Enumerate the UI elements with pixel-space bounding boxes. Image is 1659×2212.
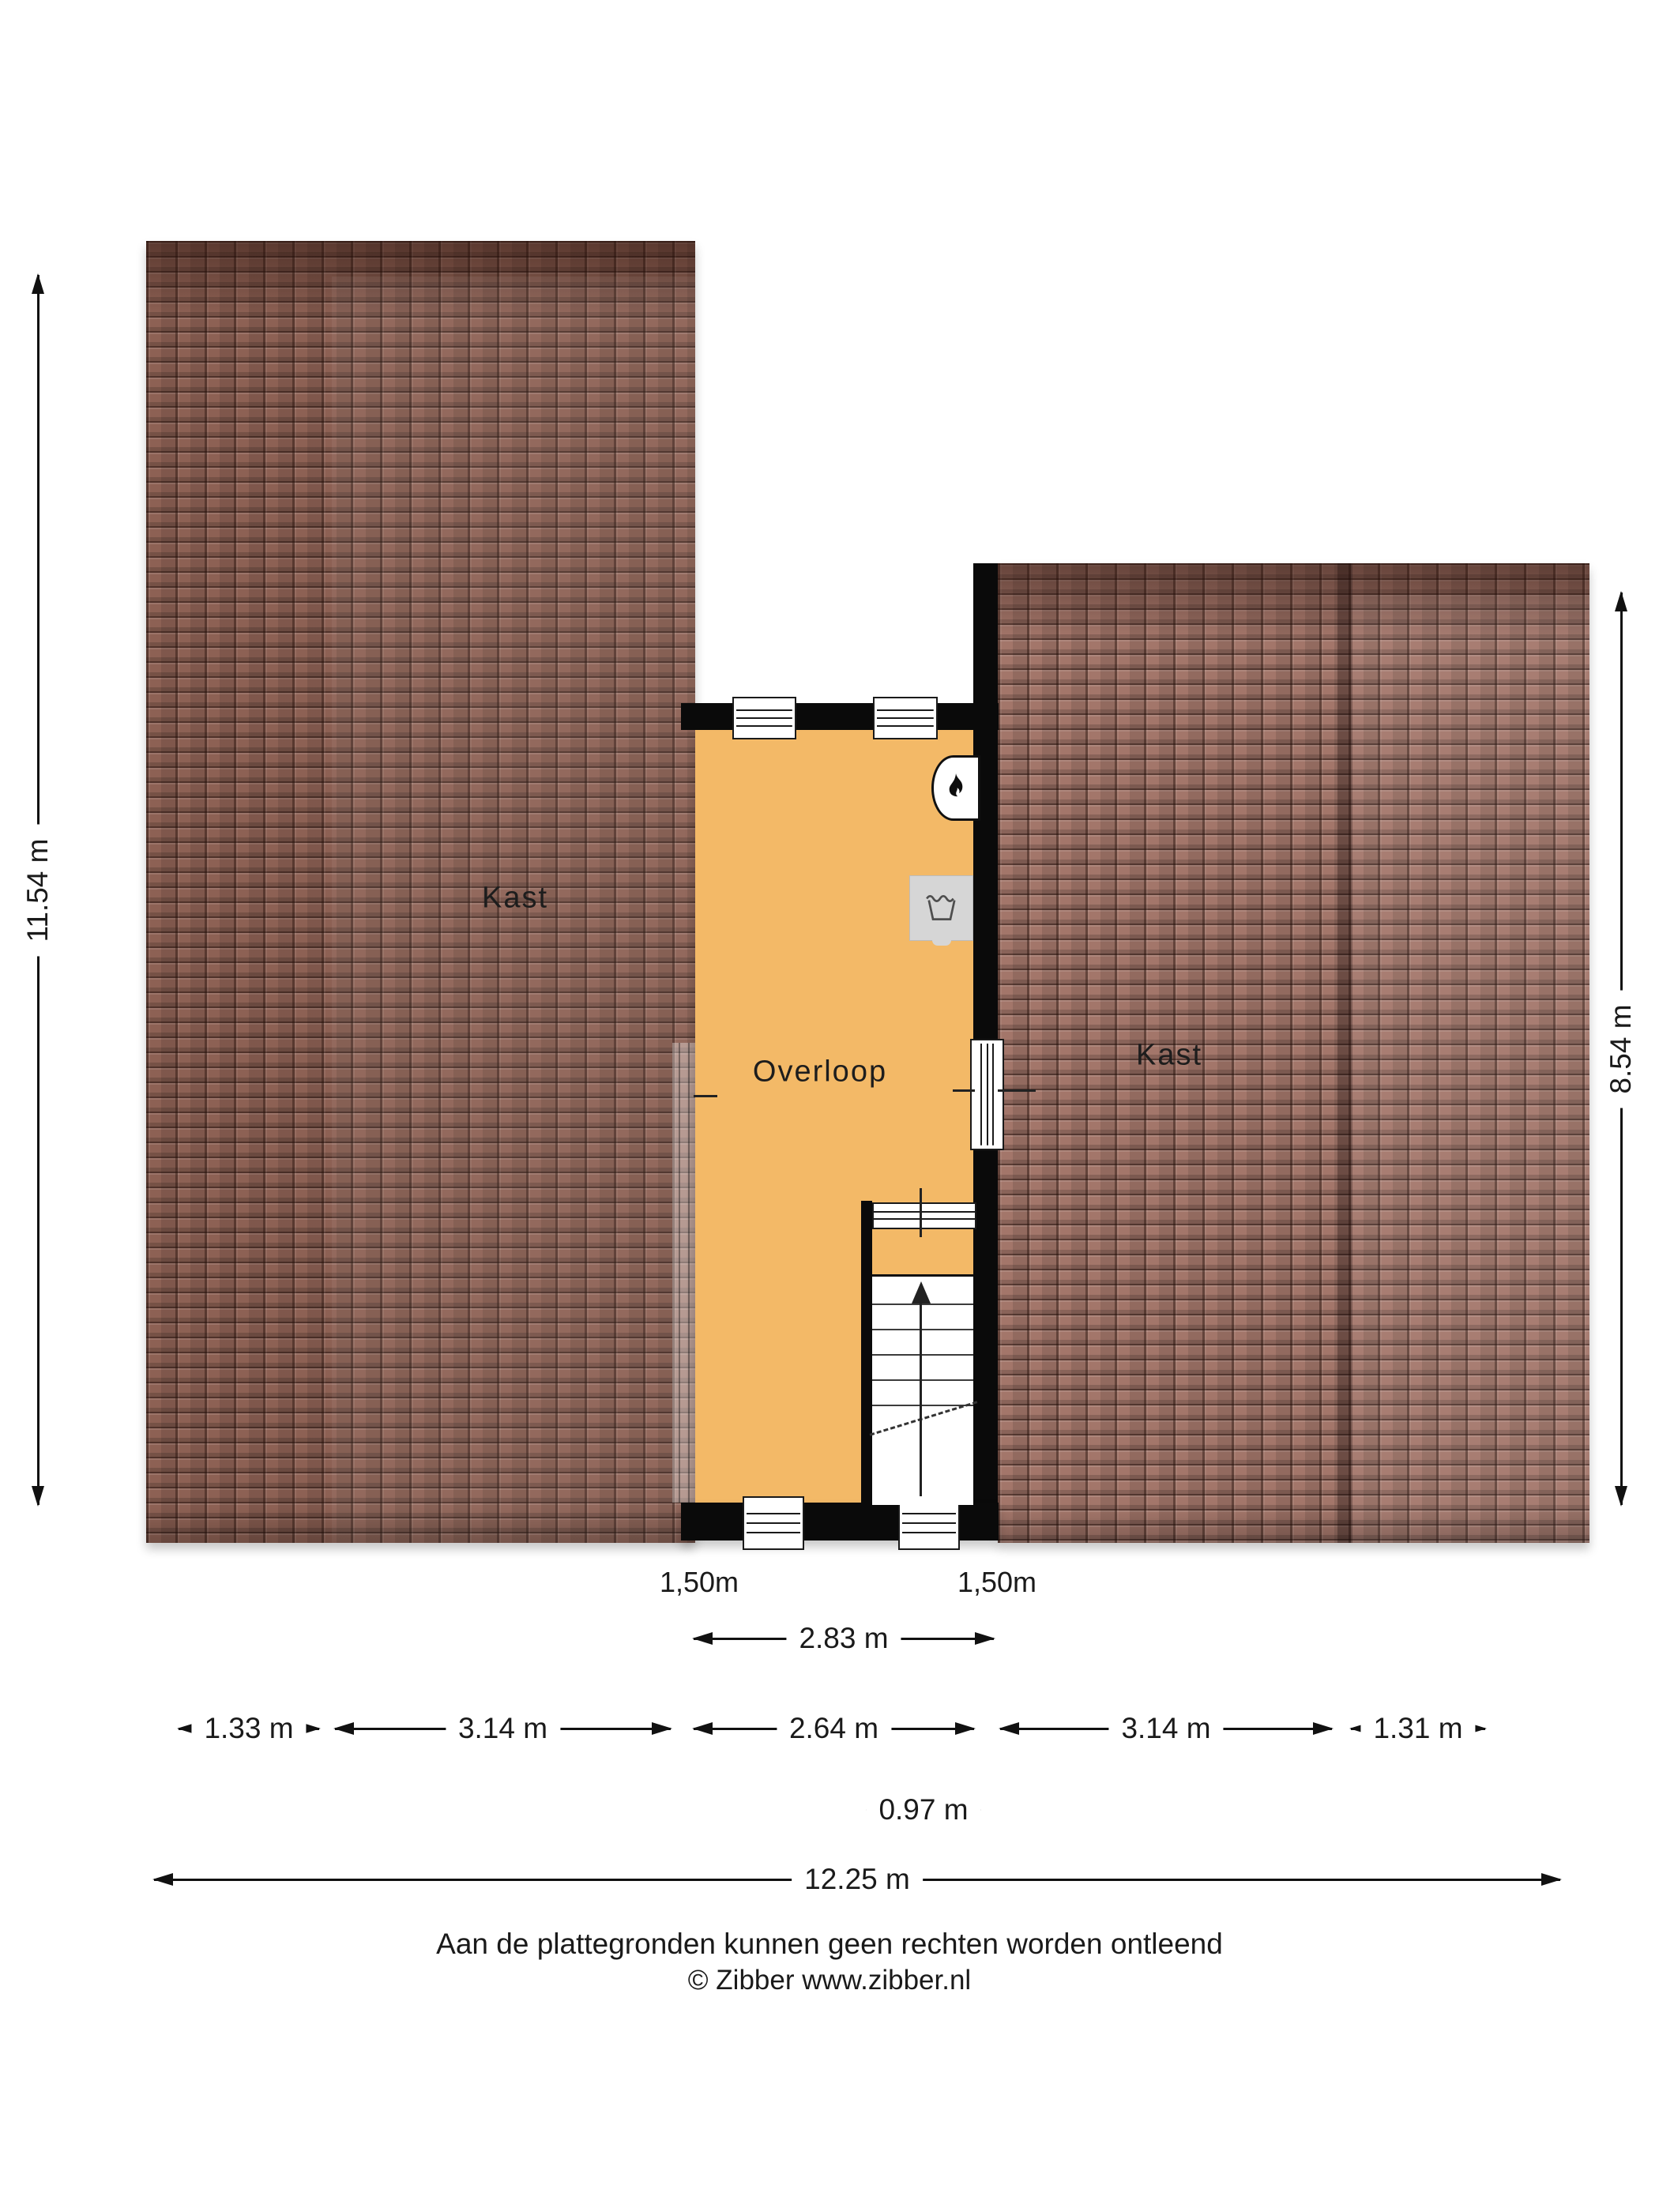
boiler-unit (931, 755, 980, 821)
arrow-right-icon (975, 1632, 995, 1645)
roof-eave-shading (998, 1507, 1589, 1543)
washer-tab (932, 940, 951, 946)
flame-icon (941, 771, 971, 806)
arrow-left-icon (152, 1873, 173, 1886)
dimension-label: 1.31 m (1360, 1712, 1475, 1745)
roof-light-shading (1352, 595, 1589, 1543)
roof-dark-band (1337, 563, 1352, 1543)
dimension-segment-4: 3.14 m (1000, 1728, 1332, 1730)
window-top-left (732, 697, 796, 739)
dimension-label: 3.14 m (1108, 1712, 1223, 1745)
dimension-total-width: 12.25 m (154, 1879, 1560, 1881)
window-right-wall (970, 1039, 1004, 1150)
arrow-down-icon (1615, 1486, 1627, 1507)
room-label-kast-right: Kast (1136, 1039, 1202, 1073)
dimension-label: 1.33 m (191, 1712, 306, 1745)
dimension-label: 2.64 m (777, 1712, 891, 1745)
stair-treads (872, 1303, 973, 1428)
arrow-right-icon (1313, 1722, 1334, 1735)
window-top-right (873, 697, 938, 739)
arrow-down-icon (32, 1486, 44, 1507)
dimension-right-height: 8.54 m (1620, 592, 1623, 1505)
dimension-segment-5: 1.31 m (1351, 1728, 1485, 1730)
arrow-left-icon (692, 1722, 713, 1735)
floorplan-canvas: Kast Kast Overloop (0, 0, 1659, 2212)
clearance-tick-right-outer (998, 1089, 1036, 1092)
arrow-up-icon (32, 273, 44, 294)
arrow-right-icon (1541, 1873, 1562, 1886)
staircase (872, 1274, 973, 1505)
wall-stairwell-left (861, 1201, 872, 1503)
dimension-left-height: 11.54 m (37, 275, 39, 1505)
room-label-overloop: Overloop (753, 1055, 887, 1089)
dimension-segment-3: 2.64 m (694, 1728, 974, 1730)
stair-opening-tick (920, 1188, 922, 1237)
washing-machine (909, 875, 973, 941)
wall-top (681, 703, 999, 730)
dimension-label: 0.97 m (866, 1793, 980, 1826)
footer-copyright: © Zibber www.zibber.nl (0, 1965, 1659, 1996)
room-label-kast-left: Kast (482, 882, 548, 916)
washing-machine-icon (924, 892, 960, 925)
dimension-segment-1: 1.33 m (179, 1728, 319, 1730)
arrow-left-icon (692, 1632, 713, 1645)
stair-direction-arrowhead (912, 1281, 931, 1303)
clearance-tick-right-inner (953, 1089, 975, 1092)
arrow-right-icon (652, 1722, 672, 1735)
roof-area-right: Kast (998, 563, 1589, 1543)
dimension-stair-width: 0.97 m (867, 1809, 980, 1811)
dimension-label: 8.54 m (1604, 990, 1638, 1108)
roof-clearance-band (672, 1043, 695, 1503)
roof-area-left: Kast (146, 241, 695, 1543)
dimension-landing-width: 2.83 m (694, 1638, 994, 1640)
clearance-label-left: 1,50m (660, 1566, 739, 1599)
stair-direction-arrow (920, 1300, 922, 1496)
clearance-label-right: 1,50m (957, 1566, 1036, 1599)
wall-segment (973, 563, 998, 705)
window-bottom-left (743, 1496, 804, 1550)
dimension-label: 3.14 m (446, 1712, 560, 1745)
arrow-left-icon (999, 1722, 1019, 1735)
dimension-segment-2: 3.14 m (335, 1728, 671, 1730)
clearance-tick-left (694, 1095, 717, 1097)
arrow-left-icon (333, 1722, 354, 1735)
arrow-right-icon (955, 1722, 976, 1735)
arrow-up-icon (1615, 591, 1627, 611)
stair-opening-balustrade (872, 1202, 976, 1229)
dimension-label: 12.25 m (792, 1863, 923, 1896)
footer-disclaimer: Aan de plattegronden kunnen geen rechten… (0, 1928, 1659, 1961)
dimension-label: 2.83 m (786, 1622, 901, 1655)
dimension-label: 11.54 m (21, 824, 55, 956)
roof-eave-shading (146, 1507, 695, 1543)
